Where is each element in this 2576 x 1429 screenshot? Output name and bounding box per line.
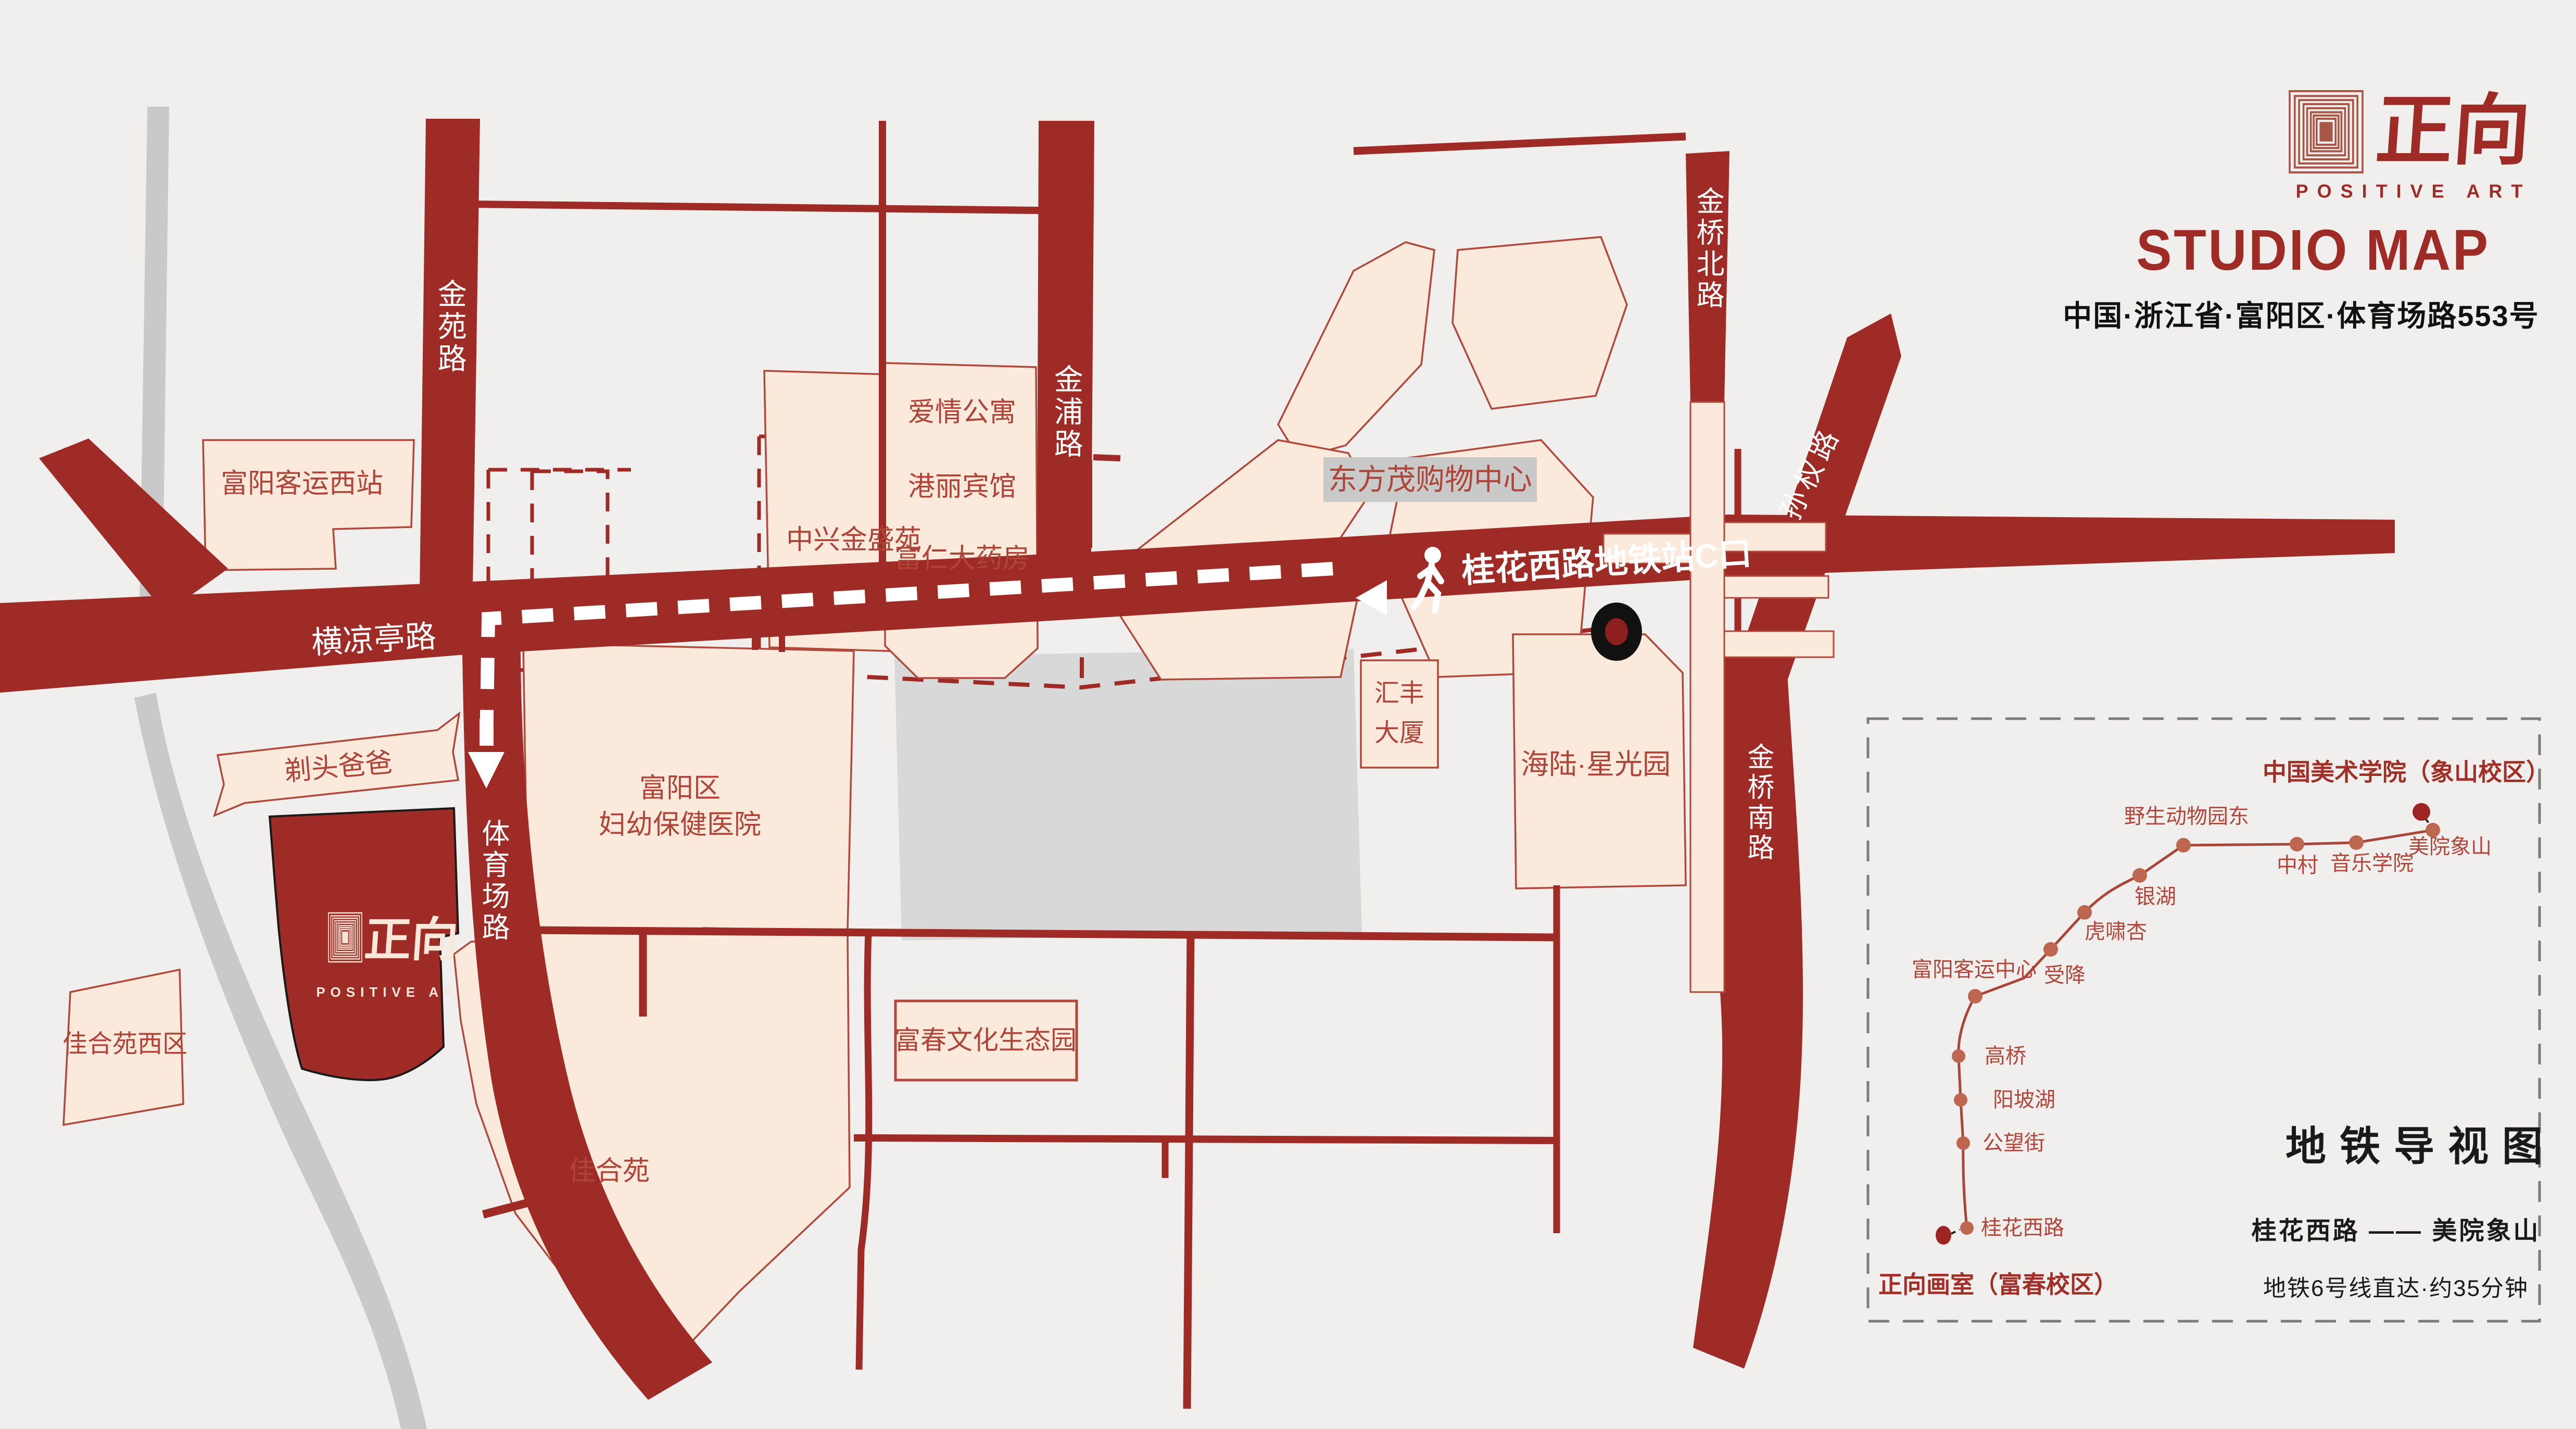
road-label-jinpu: 金浦路 bbox=[1050, 364, 1083, 461]
label-dongfangmao: 东方茂购物中心 bbox=[1328, 463, 1532, 496]
brand-logo-icon bbox=[2290, 91, 2363, 172]
studio-map-poster: 正向 POSITIVE ART STUDIO MAP 中国·浙江省·富阳区·体育… bbox=[0, 0, 2576, 1429]
metro-station-label: 受降 bbox=[2044, 963, 2086, 987]
metro-station-label: 音乐学院 bbox=[2330, 851, 2414, 875]
metro-end-label: 中国美术学院（象山校区） bbox=[2263, 759, 2550, 786]
road-label-hengliangting: 横凉亭路 bbox=[310, 618, 437, 660]
metro-station-label: 野生动物园东 bbox=[2124, 805, 2249, 829]
road-branch-stub bbox=[39, 438, 228, 613]
metro-station-label: 虎啸杏 bbox=[2085, 920, 2147, 944]
brand-logo-text: 正向 bbox=[2373, 87, 2533, 176]
road-sunquan bbox=[1739, 314, 1901, 679]
label-apt1: 爱情公寓 bbox=[908, 397, 1016, 429]
metro-station-label: 桂花西路 bbox=[1981, 1216, 2064, 1240]
label-jiaheyuan: 佳合苑 bbox=[569, 1156, 650, 1187]
map-canvas bbox=[0, 0, 2576, 1429]
metro-station-label: 富阳客运中心 bbox=[1912, 958, 2037, 982]
metro-station-label: 中村 bbox=[2277, 854, 2318, 878]
road-jinpu bbox=[1037, 121, 1094, 558]
label-jiaheyuan-west: 佳合苑西区 bbox=[62, 1030, 187, 1058]
gray-block bbox=[894, 649, 1362, 941]
page-title: STUDIO MAP bbox=[2136, 218, 2490, 284]
studio-logo-text: 正向 bbox=[362, 913, 460, 968]
label-huifeng-1: 汇丰 bbox=[1374, 675, 1424, 712]
label-hospital-1: 富阳区 bbox=[639, 773, 721, 805]
metro-route-line: 桂花西路 —— 美院象山 bbox=[2252, 1217, 2541, 1245]
metro-station-dots bbox=[1952, 823, 2440, 1235]
metro-station-label: 美院象山 bbox=[2408, 835, 2492, 859]
studio-logo-subtext: POSITIVE ART bbox=[316, 985, 472, 1000]
label-bus-station-west: 富阳客运西站 bbox=[221, 469, 383, 500]
label-huifeng-2: 大厦 bbox=[1374, 715, 1424, 751]
metro-inset-title: 地铁导视图 bbox=[2285, 1123, 2556, 1170]
address-line: 中国·浙江省·富阳区·体育场路553号 bbox=[2063, 299, 2539, 333]
down-arrow-stem bbox=[479, 719, 494, 746]
metro-station-label: 公望街 bbox=[1982, 1131, 2045, 1155]
buildings bbox=[64, 237, 1686, 1375]
metro-station-label: 高桥 bbox=[1985, 1044, 2026, 1068]
metro-route-note: 地铁6号线直达·约35分钟 bbox=[2263, 1276, 2529, 1302]
brand-logo-subtext: POSITIVE ART bbox=[2296, 180, 2532, 202]
road-label-jinqiao-north: 金桥北路 bbox=[1691, 186, 1724, 311]
label-hospital-2: 妇幼保健医院 bbox=[599, 810, 761, 841]
metro-endpoint-connectors bbox=[1951, 819, 2431, 1234]
metro-station-label: 阳坡湖 bbox=[1993, 1088, 2055, 1112]
metro-start-label: 正向画室（富春校区） bbox=[1878, 1271, 2118, 1299]
station-marker bbox=[1591, 603, 1642, 661]
building-hospital bbox=[523, 643, 854, 973]
label-fuchun-park: 富春文化生态园 bbox=[894, 1025, 1077, 1056]
building-dongfangmao-c bbox=[1453, 237, 1627, 409]
label-apt2: 港丽宾馆 bbox=[908, 472, 1016, 503]
building-bus-station-west bbox=[203, 440, 414, 570]
label-hailu: 海陆·星光园 bbox=[1521, 748, 1671, 781]
road-label-jinqiao-south: 金桥南路 bbox=[1742, 743, 1773, 863]
label-apt3: 富仁大药房 bbox=[894, 544, 1030, 575]
building-dongfangmao-a bbox=[1278, 242, 1434, 458]
road-label-jinyuan: 金苑路 bbox=[433, 279, 466, 375]
road-label-tiyuchang: 体育场路 bbox=[477, 819, 509, 944]
metro-station-label: 银湖 bbox=[2135, 885, 2176, 909]
